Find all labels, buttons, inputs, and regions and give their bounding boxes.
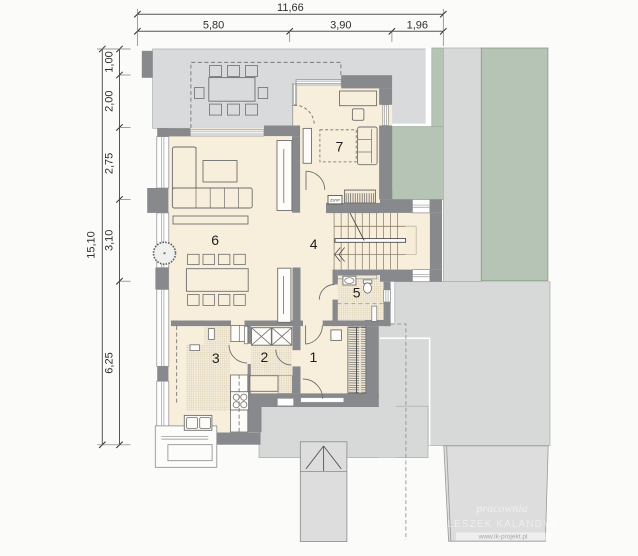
svg-text:11,66: 11,66 — [277, 2, 304, 14]
svg-text:2,75: 2,75 — [103, 153, 115, 174]
svg-text:3,90: 3,90 — [330, 19, 351, 31]
svg-text:6: 6 — [211, 232, 219, 248]
svg-text:5: 5 — [353, 285, 361, 301]
svg-text:7: 7 — [336, 139, 344, 155]
svg-text:1,96: 1,96 — [407, 19, 428, 31]
svg-text:LESZEK KALANDYK: LESZEK KALANDYK — [448, 519, 559, 530]
svg-text:6,25: 6,25 — [103, 352, 115, 373]
svg-text:3: 3 — [212, 350, 220, 366]
svg-text:5,80: 5,80 — [203, 19, 224, 31]
svg-text:1,00: 1,00 — [103, 51, 115, 72]
svg-text:3,10: 3,10 — [103, 230, 115, 251]
svg-text:ZSYP: ZSYP — [330, 199, 340, 203]
svg-text:15,10: 15,10 — [86, 231, 98, 259]
svg-text:2,00: 2,00 — [103, 90, 115, 111]
svg-text:4: 4 — [310, 236, 318, 252]
svg-text:pracownia: pracownia — [475, 501, 527, 515]
svg-text:2: 2 — [261, 349, 269, 365]
svg-text:1: 1 — [310, 349, 318, 365]
svg-text:www.lk-projekt.pl: www.lk-projekt.pl — [478, 534, 528, 541]
